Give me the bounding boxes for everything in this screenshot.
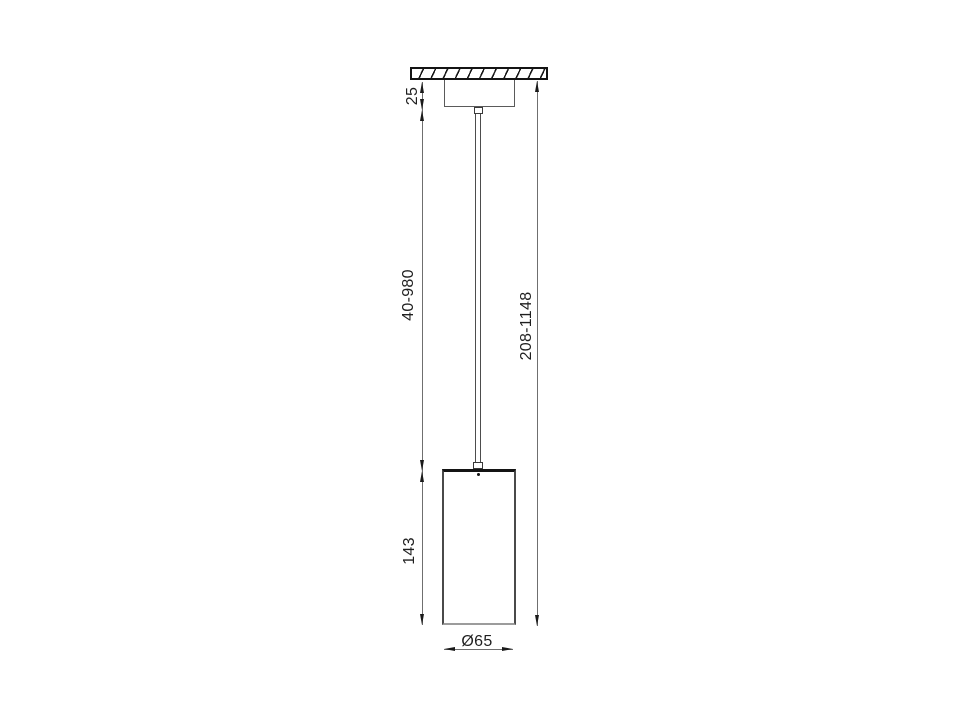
ceiling-mount-plate-hatched (410, 67, 548, 80)
arrow-down-total-bottom (535, 615, 539, 626)
suspension-rod (475, 114, 481, 462)
shade-ferrule (473, 462, 483, 469)
cord-connector (474, 107, 483, 114)
dimension-label-canopy-height: 25 (405, 87, 421, 105)
arrow-up-total-top (535, 81, 539, 92)
canopy (444, 80, 515, 107)
dimension-line-right (537, 81, 538, 626)
arrow-down-cable-bottom (420, 460, 424, 471)
arrow-up-cable-top (420, 110, 424, 121)
cylindrical-lampshade (442, 469, 516, 625)
technical-drawing-canvas: 25 40-980 143 208-1148 Ø65 (0, 0, 960, 720)
dimension-label-shade-height: 143 (402, 537, 418, 565)
arrow-down-shade-bottom (420, 614, 424, 625)
dimension-label-shade-diameter: Ø65 (461, 634, 492, 650)
cord-exit-dot (477, 473, 480, 476)
arrow-up-shade-top (420, 471, 424, 482)
dimension-label-total-length: 208-1148 (519, 292, 535, 361)
arrow-left-diameter (444, 647, 455, 651)
arrow-right-diameter (502, 647, 513, 651)
dimension-line-left (422, 82, 423, 625)
dimension-label-suspension-length: 40-980 (401, 269, 417, 321)
